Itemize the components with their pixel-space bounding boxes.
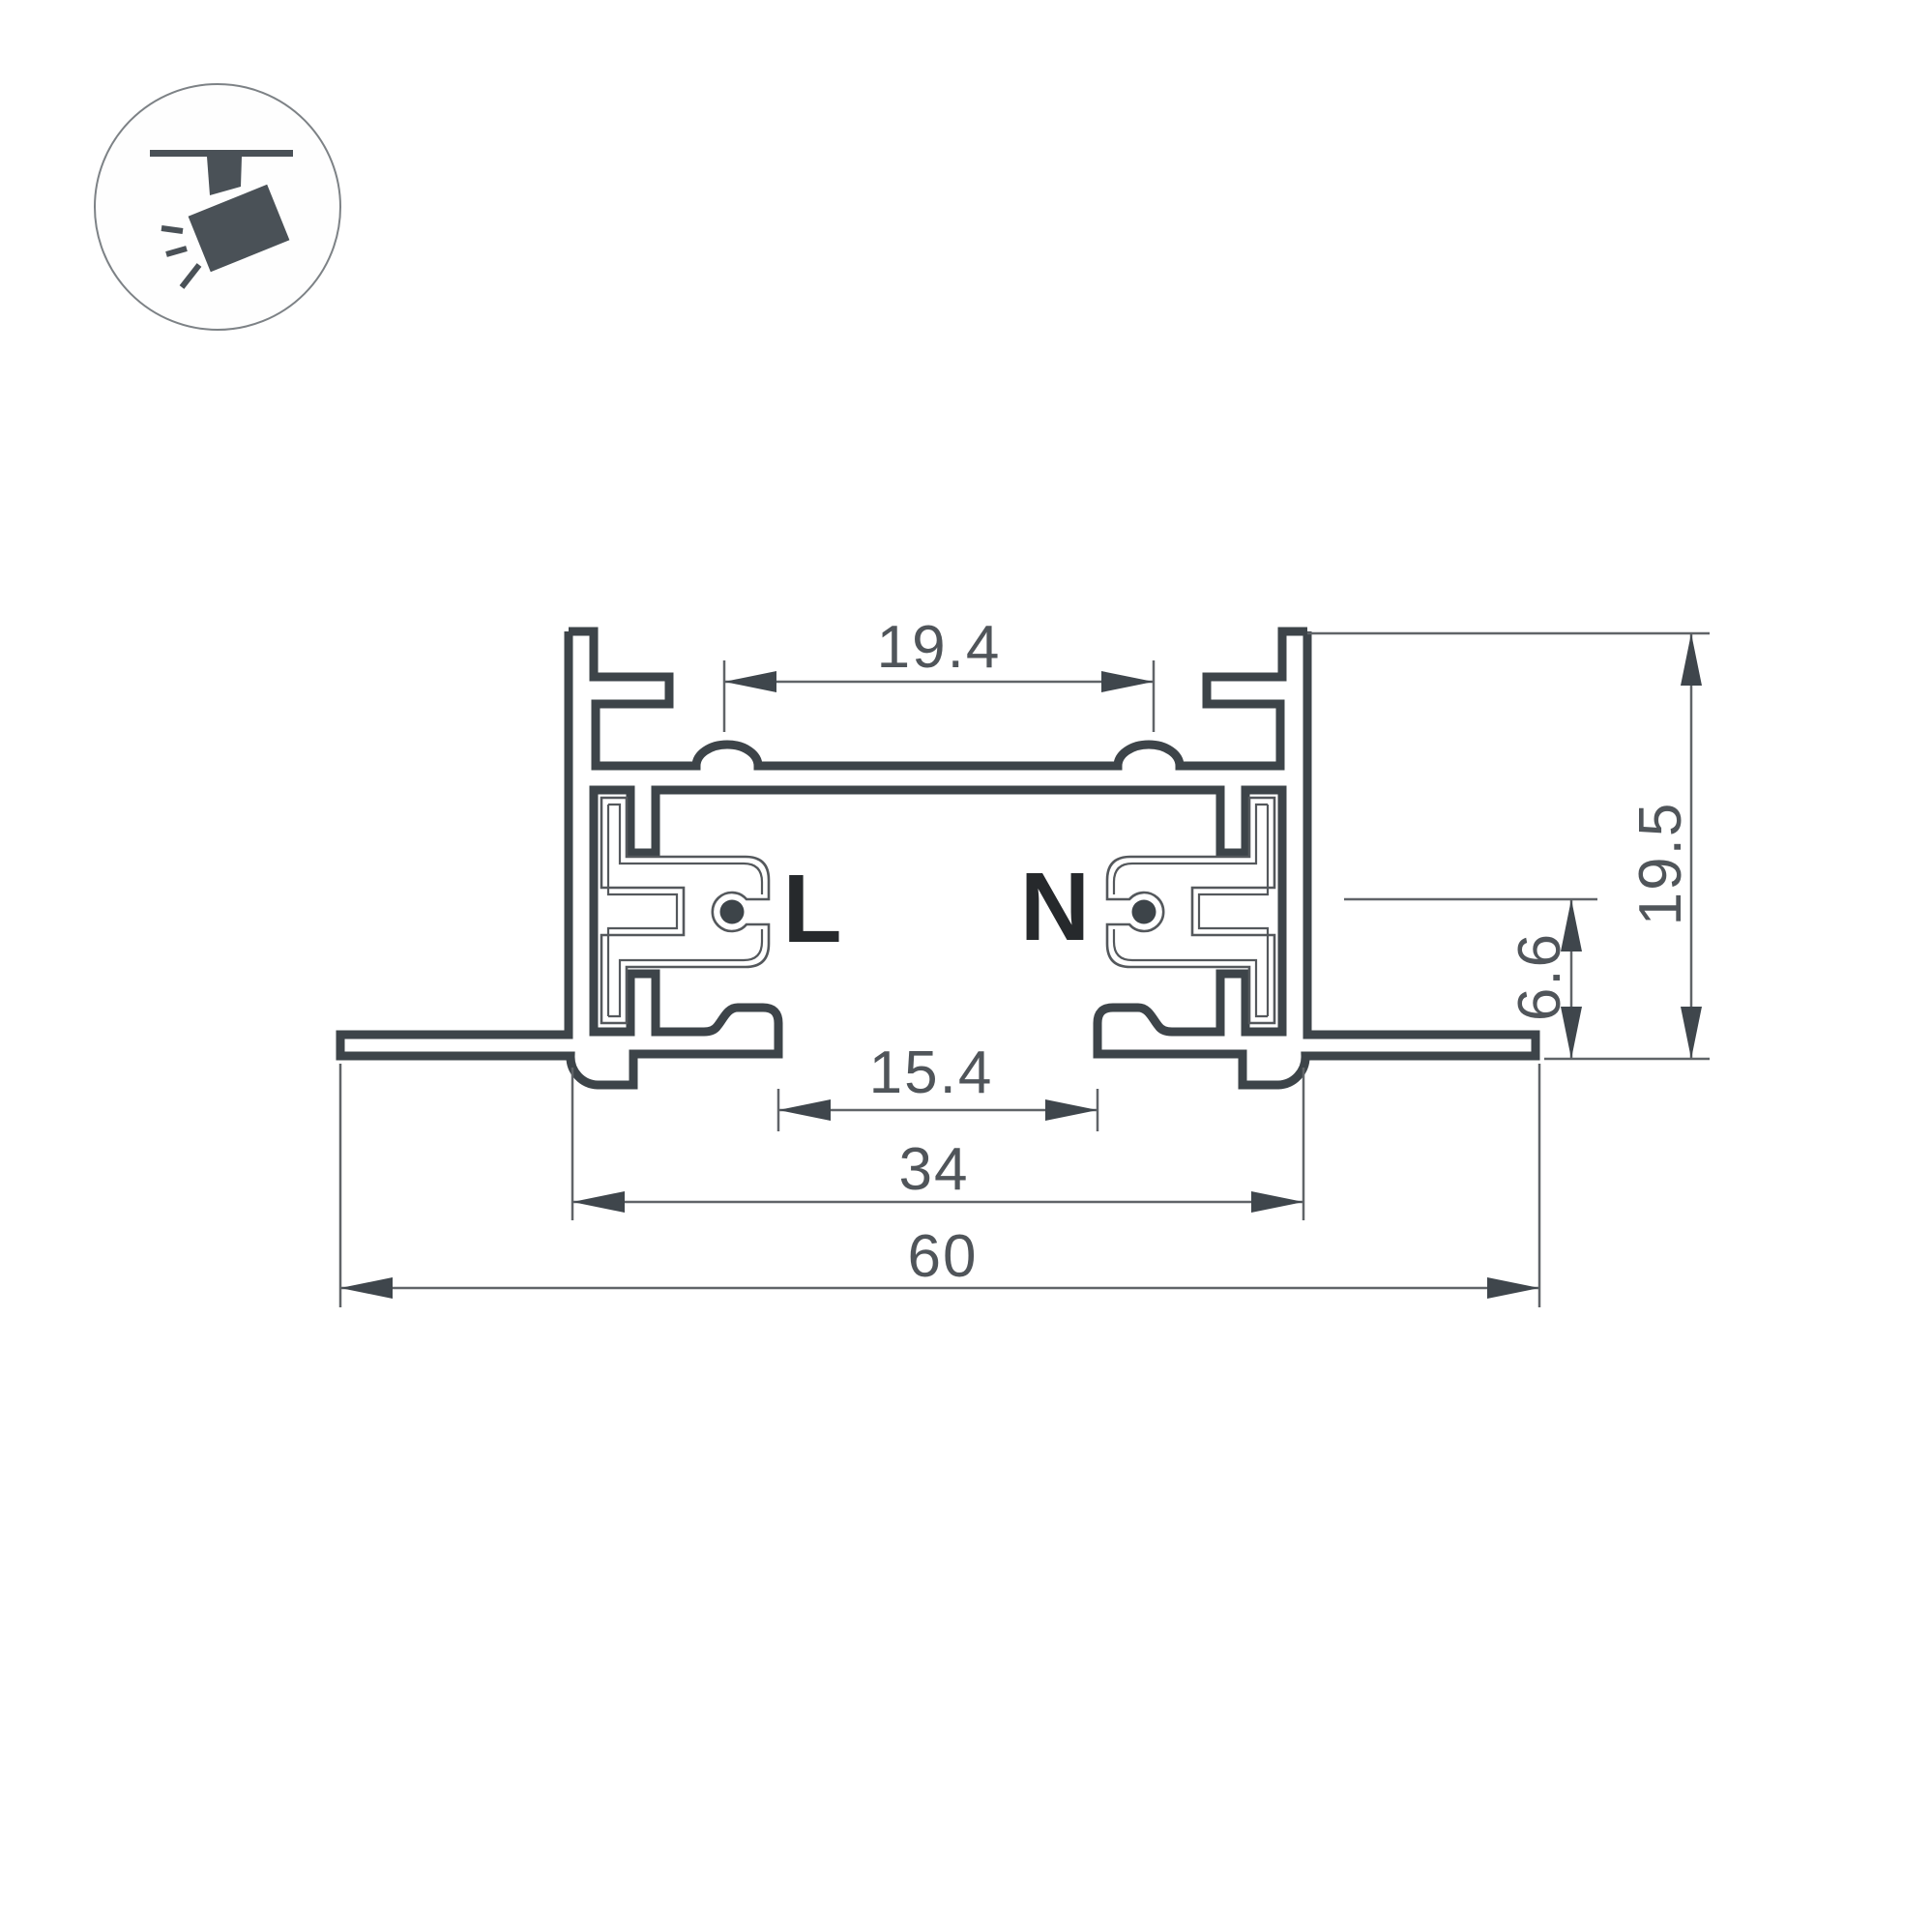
dim-overall-width-value: 60 [908,1223,979,1290]
dim-recess-depth-value: 6.6 [1507,932,1573,1021]
arrow-left-icon [778,1099,831,1121]
track-light-icon [95,84,340,330]
arrow-right-icon [1101,671,1154,692]
label-live-conductor: L [782,855,841,963]
profile-cross-section-drawing: L N 19.4 19.5 6.6 [0,0,1932,1932]
dim-top-inner-width: 19.4 [724,614,1154,732]
dim-bottom-opening-width-value: 15.4 [869,1039,994,1106]
arrow-right-icon [1487,1277,1539,1299]
drawing-page: L N 19.4 19.5 6.6 [0,0,1932,1932]
arrow-down-icon [1681,1007,1702,1059]
arrow-up-icon [1681,633,1702,686]
arrow-right-icon [1251,1191,1303,1213]
arrow-left-icon [340,1277,393,1299]
dim-overall-height-value: 19.5 [1627,802,1694,926]
dim-body-width-value: 34 [899,1136,970,1203]
arrow-left-icon [724,671,776,692]
label-neutral-conductor: N [1020,853,1090,961]
dim-bottom-opening-width: 15.4 [778,1039,1098,1131]
profile-left-half [340,631,938,1085]
arrow-right-icon [1045,1099,1098,1121]
dim-top-inner-width-value: 19.4 [877,614,1002,681]
icon-ceiling-bar [150,150,293,157]
arrow-left-icon [572,1191,625,1213]
